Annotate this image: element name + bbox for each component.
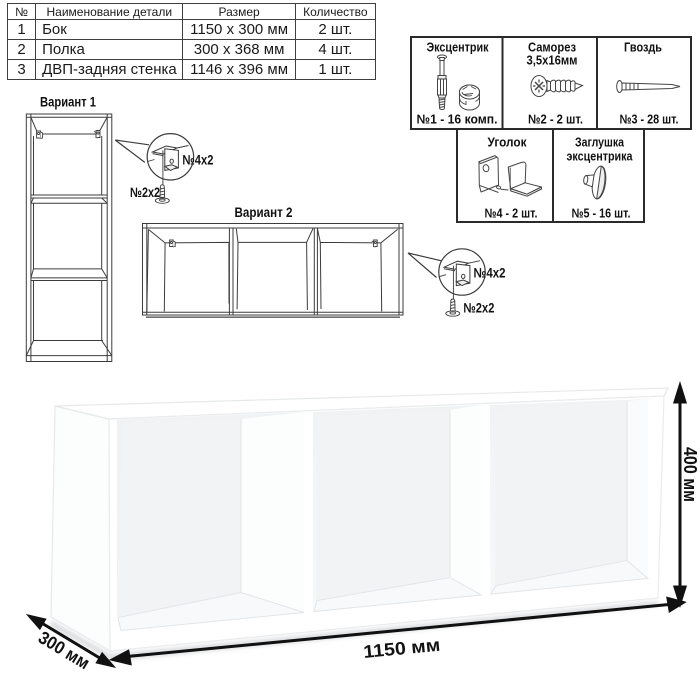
svg-text:Эксцентрик: Эксцентрик	[427, 40, 489, 55]
svg-text:№2х2: №2х2	[463, 301, 494, 316]
svg-text:№3 - 28 шт.: №3 - 28 шт.	[620, 112, 679, 127]
svg-text:1150 мм: 1150 мм	[362, 635, 441, 662]
svg-text:№4х2: №4х2	[474, 266, 506, 281]
svg-text:№2х2: №2х2	[130, 185, 160, 200]
svg-text:Вариант 2: Вариант 2	[235, 204, 293, 220]
svg-text:Уголок: Уголок	[488, 135, 527, 150]
svg-text:400 мм: 400 мм	[680, 447, 700, 502]
svg-text:Вариант 1: Вариант 1	[40, 94, 96, 110]
svg-text:3,5х16мм: 3,5х16мм	[527, 53, 578, 68]
svg-text:Заглушка: Заглушка	[575, 135, 625, 150]
svg-text:Гвоздь: Гвоздь	[624, 40, 662, 55]
svg-text:№2 - 2 шт.: №2 - 2 шт.	[528, 112, 583, 127]
svg-text:№5 - 16 шт.: №5 - 16 шт.	[572, 206, 631, 221]
svg-text:№1 - 16 комп.: №1 - 16 комп.	[417, 112, 498, 127]
svg-text:№4х2: №4х2	[182, 153, 213, 168]
svg-text:эксцентрика: эксцентрика	[567, 149, 634, 164]
